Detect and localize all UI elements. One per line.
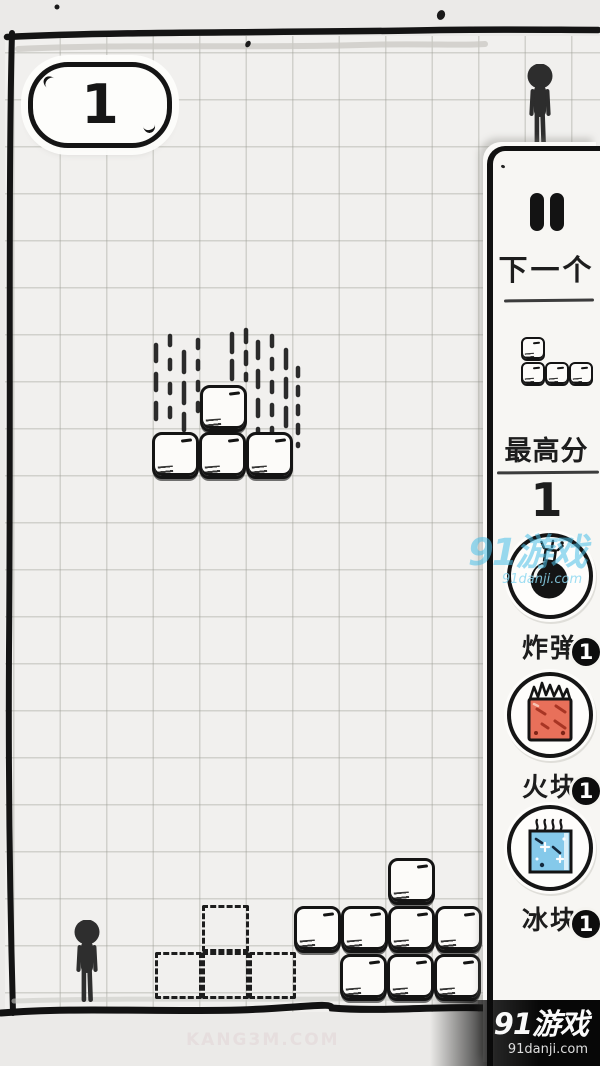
divider <box>504 299 594 303</box>
ice-block-icon <box>511 809 589 887</box>
item-ice[interactable]: 1 冰块 <box>506 805 594 937</box>
high-score-label: 最高分 <box>493 429 600 468</box>
fire-block-icon <box>511 676 589 754</box>
preview-cell <box>569 362 593 386</box>
ink-dot <box>501 164 506 168</box>
high-score-value: 1 <box>493 473 600 527</box>
side-panel: 下一个 最高分 1 1 炸弹 <box>487 146 600 1066</box>
item-fire[interactable]: 1 火块 <box>506 672 594 804</box>
next-piece-label: 下一个 <box>493 247 600 289</box>
preview-cell <box>545 362 569 386</box>
next-piece-preview <box>521 337 600 389</box>
pause-icon <box>530 193 544 231</box>
score-badge: 1 <box>28 62 172 148</box>
watermark-faint: KANG3M.COM <box>186 1030 340 1050</box>
stickman-top-right <box>524 64 556 148</box>
item-bomb[interactable]: 1 炸弹 <box>506 533 594 665</box>
stickman-bottom-left <box>71 920 103 1004</box>
preview-cell <box>521 337 545 361</box>
item-bomb-count: 1 <box>569 635 600 669</box>
game-screen: 1 下一个 <box>0 0 600 1066</box>
pause-icon <box>550 193 564 231</box>
bomb-icon <box>511 537 589 615</box>
score-value: 1 <box>81 78 119 132</box>
item-ice-ring <box>507 805 593 891</box>
pause-button[interactable] <box>493 193 600 233</box>
preview-cell <box>521 362 545 386</box>
item-fire-ring <box>507 672 593 758</box>
item-bomb-ring <box>507 533 593 619</box>
item-fire-count: 1 <box>569 774 600 808</box>
item-ice-count: 1 <box>569 907 600 941</box>
